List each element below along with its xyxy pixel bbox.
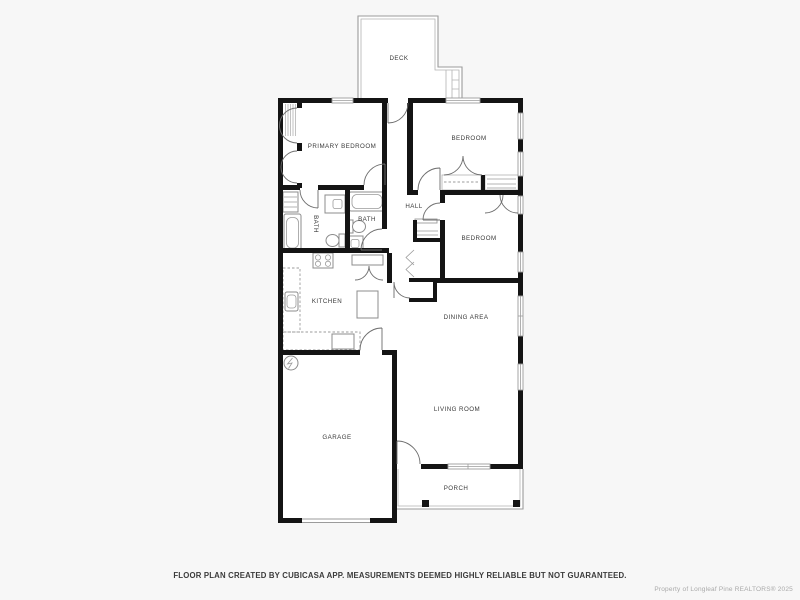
- house-footprint: [278, 98, 523, 523]
- floor-plan-page: DECK PRIMARY BEDROOM BEDROOM BATH BATH H…: [0, 0, 800, 600]
- pantry-cabinet: [352, 255, 383, 265]
- window: [518, 196, 523, 214]
- room-label-porch: PORCH: [444, 485, 469, 492]
- bathtub-icon: [349, 192, 385, 211]
- room-label-bedroom-middle: BEDROOM: [461, 235, 496, 242]
- floor-plan-drawing: DECK PRIMARY BEDROOM BEDROOM BATH BATH H…: [0, 0, 800, 600]
- room-label-living-room: LIVING ROOM: [434, 406, 480, 413]
- porch-post: [513, 500, 520, 507]
- dishwasher-icon: [332, 334, 354, 349]
- room-label-dining-area: DINING AREA: [444, 314, 489, 321]
- stove-icon: [313, 253, 333, 268]
- window: [446, 98, 480, 103]
- room-label-hall: HALL: [405, 203, 422, 210]
- linen-shelves-icon: [283, 192, 298, 212]
- porch-post: [422, 500, 429, 507]
- window: [448, 464, 490, 469]
- room-label-primary-bedroom: PRIMARY BEDROOM: [308, 143, 376, 150]
- window: [518, 252, 523, 272]
- footprints: [278, 16, 523, 523]
- water-heater-icon: [284, 356, 298, 370]
- room-label-hall-bath: BATH: [358, 216, 376, 223]
- kitchen-island: [357, 291, 378, 318]
- room-label-primary-bath: BATH: [312, 215, 319, 233]
- window: [518, 296, 523, 336]
- room-label-bedroom-top: BEDROOM: [451, 135, 486, 142]
- window: [518, 152, 523, 176]
- disclaimer-text: FLOOR PLAN CREATED BY CUBICASA APP. MEAS…: [0, 571, 800, 580]
- kitchen-sink-icon: [285, 292, 298, 311]
- room-label-deck: DECK: [390, 55, 409, 62]
- room-label-garage: GARAGE: [322, 434, 351, 441]
- sink-vanity-icon: [325, 195, 345, 213]
- window: [518, 113, 523, 139]
- window: [332, 98, 353, 103]
- toilet-icon: [326, 234, 345, 247]
- watermark-text: Property of Longleaf Pine REALTORS® 2025: [654, 586, 793, 593]
- window: [518, 364, 523, 390]
- bathtub-icon: [284, 214, 301, 251]
- room-label-kitchen: KITCHEN: [312, 298, 342, 305]
